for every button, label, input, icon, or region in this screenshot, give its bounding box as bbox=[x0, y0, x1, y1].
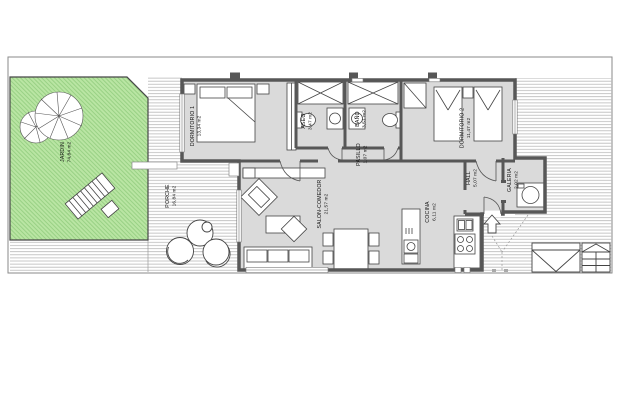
window bbox=[429, 78, 440, 81]
label-hall-name: HALL bbox=[466, 171, 472, 185]
label-pasillo-area: 1,07 m2 bbox=[363, 145, 369, 163]
floor-plan: JARDIN 74,84 m2 PORCHE 16,84 m2 DORMITOR… bbox=[0, 0, 620, 415]
label-dorm1-area: 13,34 m2 bbox=[197, 115, 203, 136]
pillar bbox=[229, 163, 239, 176]
single-bed bbox=[434, 87, 462, 141]
galeria-fixtures bbox=[517, 183, 544, 207]
label-cocina-name: COCINA bbox=[425, 201, 431, 223]
exterior-stairs bbox=[532, 243, 610, 272]
label-galeria-name: GALERIA bbox=[507, 168, 513, 192]
hob bbox=[455, 234, 475, 254]
vent bbox=[464, 267, 470, 272]
single-bed bbox=[474, 87, 502, 141]
label-bano-area: 3,51 m2 bbox=[362, 110, 368, 128]
label-bano-name: BAÑO bbox=[354, 111, 361, 127]
dining-table bbox=[334, 229, 368, 269]
chair bbox=[323, 251, 333, 264]
label-porche-area: 16,84 m2 bbox=[172, 185, 178, 206]
label-dorm2-area: 11,47 m2 bbox=[466, 118, 472, 139]
garden-step bbox=[132, 162, 177, 169]
chair bbox=[369, 251, 379, 264]
window bbox=[352, 78, 363, 81]
label-aseo-name: ASEO bbox=[301, 113, 307, 128]
nightstand bbox=[184, 84, 195, 94]
label-aseo-area: 3,47 m2 bbox=[308, 112, 314, 130]
label-jardin-name: JARDIN bbox=[60, 142, 66, 162]
chair bbox=[323, 233, 333, 246]
label-galeria-area: 2,02 m2 bbox=[514, 171, 520, 189]
round-chair bbox=[167, 238, 194, 265]
label-cocina-area: 6,11 m2 bbox=[432, 203, 438, 221]
nightstand bbox=[257, 84, 269, 94]
label-pasillo-name: PASILLO bbox=[356, 143, 362, 166]
nightstand bbox=[463, 87, 473, 98]
label-dorm2-name: DORMITORIO 2 bbox=[460, 108, 466, 148]
label-porche-name: PORCHE bbox=[165, 184, 171, 208]
vent bbox=[455, 267, 461, 272]
label-dorm1-name: DORMITORIO 1 bbox=[190, 106, 196, 146]
label-hall-area: 5,07 m2 bbox=[473, 169, 479, 187]
label-salon-name: SALON-COMEDOR bbox=[317, 179, 323, 228]
label-salon-area: 21,57 m2 bbox=[324, 193, 330, 214]
round-chair bbox=[203, 239, 229, 265]
floor-plan-canvas: JARDIN 74,84 m2 PORCHE 16,84 m2 DORMITOR… bbox=[0, 0, 620, 415]
label-jardin-area: 74,84 m2 bbox=[67, 141, 73, 162]
chair bbox=[369, 233, 379, 246]
